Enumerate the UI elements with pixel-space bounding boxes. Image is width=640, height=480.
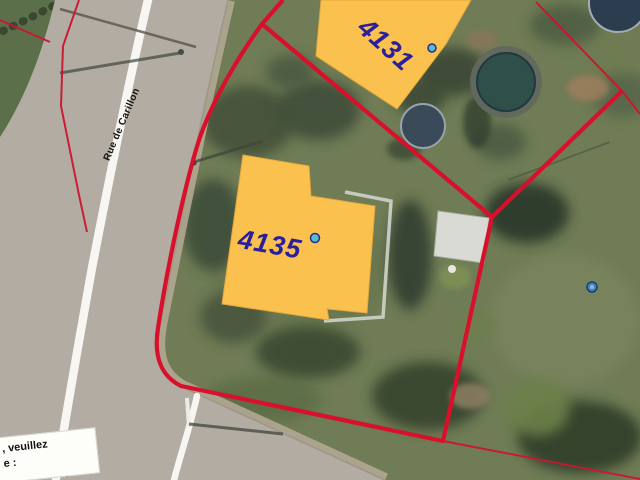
street-post [187, 398, 189, 427]
clipped-message-box: , veuillez e : [0, 427, 100, 480]
utility-pole [178, 49, 184, 55]
building-marker-4135[interactable] [311, 234, 320, 243]
pool-medium [401, 104, 445, 148]
map-graphics [0, 0, 640, 480]
building-marker-4131[interactable] [428, 44, 436, 52]
poi-marker-blue[interactable] [587, 282, 597, 292]
poi-marker-inner [590, 285, 594, 289]
shed [434, 211, 489, 263]
aerial-map-canvas[interactable]: 4131 4135 Rue de Carillon des Sa , veuil… [0, 0, 640, 480]
yard-object [448, 265, 456, 273]
pool-large [477, 53, 535, 111]
